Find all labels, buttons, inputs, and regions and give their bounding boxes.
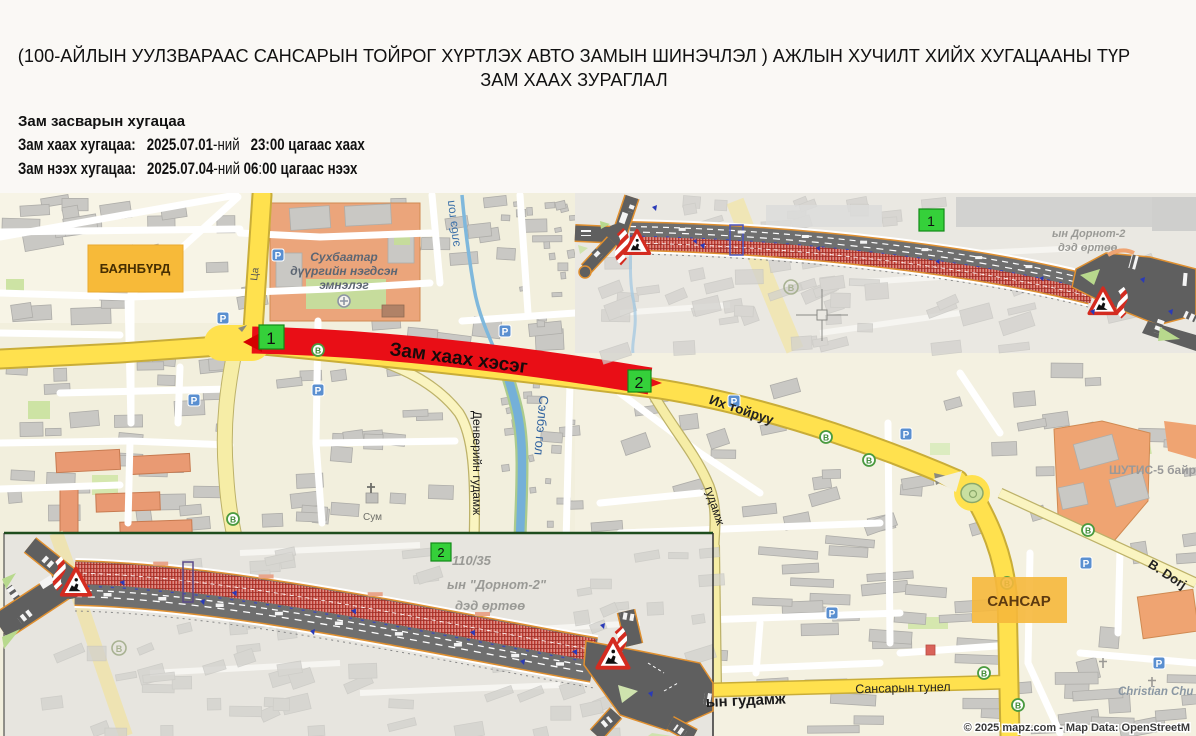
- svg-text:ын гудамж: ын гудамж: [705, 691, 786, 711]
- svg-text:Денверийн гудамж: Денверийн гудамж: [470, 411, 484, 515]
- svg-text:2: 2: [635, 375, 644, 392]
- svg-text:САНСАР: САНСАР: [987, 593, 1050, 610]
- svg-text:Сум: Сум: [363, 512, 382, 523]
- svg-text:Сансарын тунел: Сансарын тунел: [855, 680, 951, 696]
- svg-text:Christian Chu: Christian Chu: [1118, 686, 1193, 698]
- svg-text:В: В: [788, 283, 795, 293]
- svg-text:2: 2: [437, 545, 444, 560]
- svg-text:БАЯНБҮРД: БАЯНБҮРД: [100, 261, 171, 276]
- svg-text:ын Дорнот-2: ын Дорнот-2: [1052, 228, 1125, 240]
- svg-text:дэд өртөө: дэд өртөө: [1058, 242, 1118, 254]
- svg-text:110/35: 110/35: [452, 553, 492, 568]
- svg-text:В: В: [116, 644, 123, 654]
- svg-text:эмнэлэг: эмнэлэг: [319, 278, 369, 292]
- svg-text:1: 1: [927, 213, 935, 229]
- svg-text:дүүргийн нэгдсэн: дүүргийн нэгдсэн: [290, 264, 398, 278]
- svg-text:Сухбаатар: Сухбаатар: [310, 250, 377, 264]
- svg-text:Ца: Ца: [249, 267, 262, 282]
- svg-text:1: 1: [266, 329, 275, 348]
- svg-text:дэд өртөө: дэд өртөө: [455, 598, 525, 613]
- svg-text:ШУТИС-5 байр: ШУТИС-5 байр: [1109, 463, 1196, 477]
- svg-text:ын "Дорнот-2": ын "Дорнот-2": [447, 577, 547, 592]
- svg-text:© 2025 mapz.com - Map Data: Op: © 2025 mapz.com - Map Data: OpenStreetM: [964, 722, 1190, 734]
